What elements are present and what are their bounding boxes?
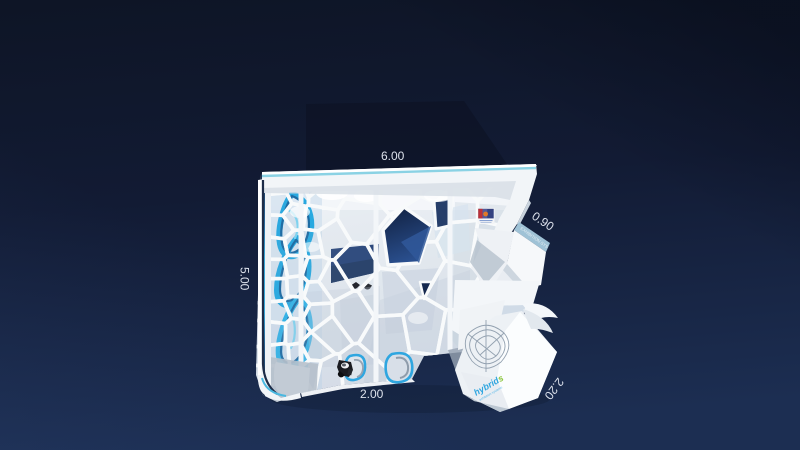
svg-text:6.00: 6.00: [381, 149, 405, 163]
svg-text:5.00: 5.00: [238, 267, 252, 291]
svg-text:2.00: 2.00: [360, 387, 384, 401]
